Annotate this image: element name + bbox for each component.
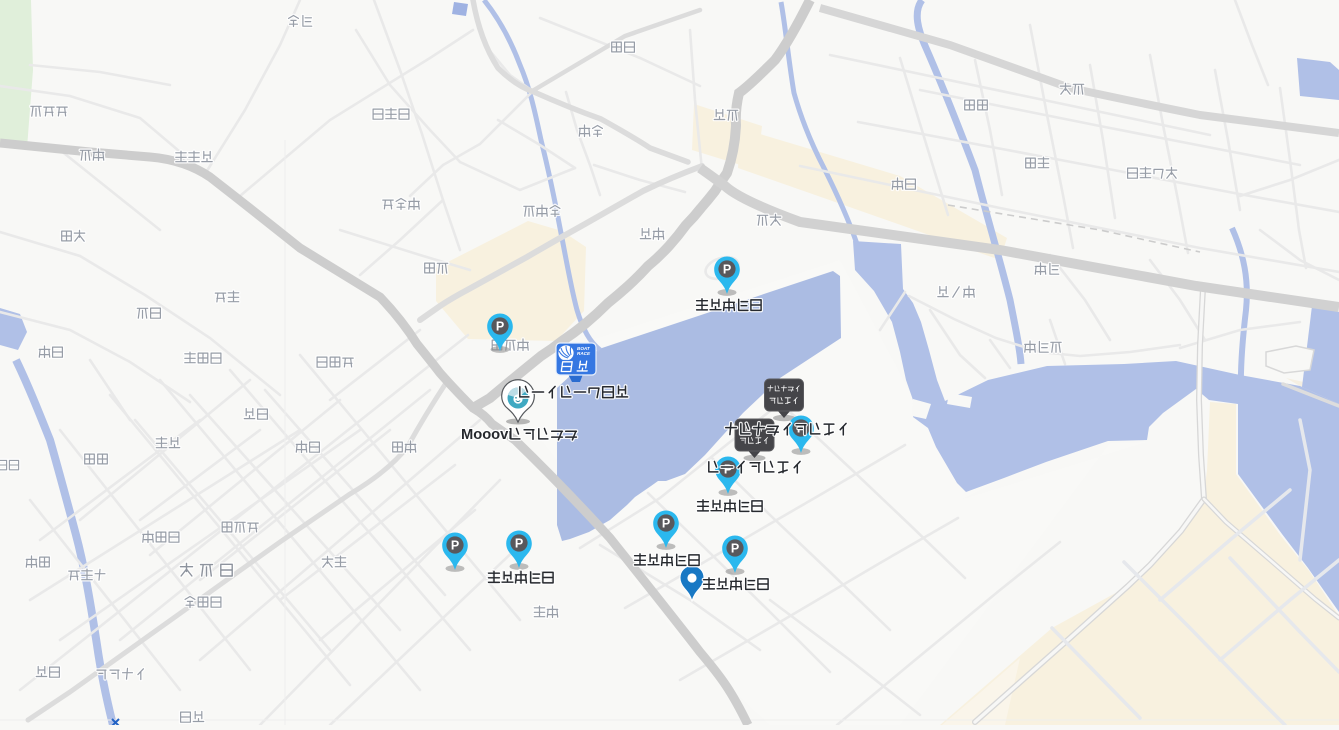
svg-text:RACE: RACE: [577, 351, 591, 356]
svg-text:Mooovi: Mooovi: [461, 427, 512, 443]
